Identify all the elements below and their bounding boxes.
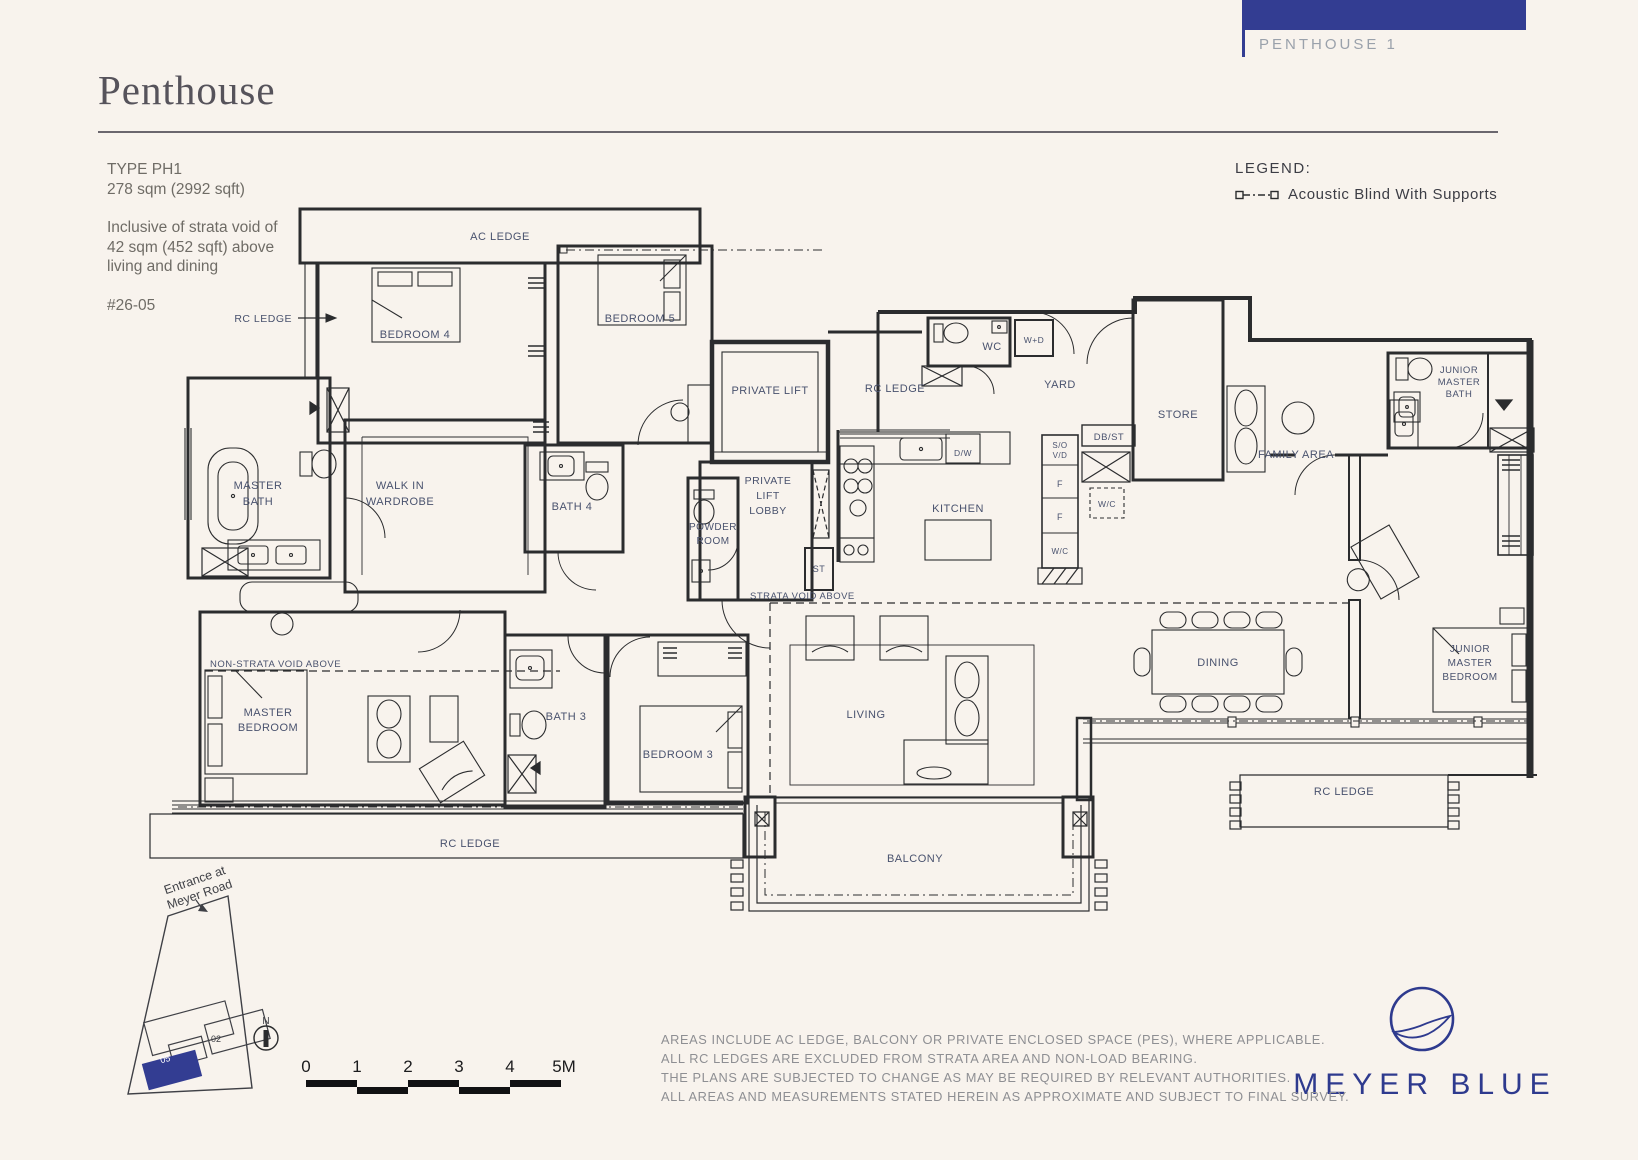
plan-label: MASTER bbox=[234, 480, 283, 492]
armchair bbox=[806, 616, 854, 660]
unit-05-footprint bbox=[143, 1050, 202, 1089]
disclaimer-line: ALL AREAS AND MEASUREMENTS STATED HEREIN… bbox=[661, 1087, 1349, 1106]
ledges bbox=[150, 775, 1459, 911]
room-store bbox=[1133, 300, 1223, 480]
stack-02-label: 02 bbox=[211, 1034, 221, 1044]
hatch-base bbox=[1038, 568, 1082, 584]
sofa bbox=[368, 696, 410, 762]
plan-label: BEDROOM 5 bbox=[605, 313, 676, 325]
room-bedroom-4 bbox=[318, 263, 545, 443]
plan-label: W/C bbox=[1098, 499, 1116, 509]
plan-label: YARD bbox=[1044, 379, 1076, 391]
plan-label: JUNIOR bbox=[1450, 644, 1490, 655]
toilet bbox=[300, 452, 312, 476]
logo-circle-icon bbox=[1391, 988, 1453, 1050]
room-bedroom-3 bbox=[608, 635, 748, 803]
plan-label: KITCHEN bbox=[932, 503, 984, 515]
wardrobe-hatch bbox=[663, 648, 742, 658]
plan-label: POWDER bbox=[689, 522, 737, 533]
plan-label: BEDROOM 3 bbox=[643, 749, 714, 761]
disclaimer: AREAS INCLUDE AC LEDGE, BALCONY OR PRIVA… bbox=[661, 1030, 1349, 1106]
armchair bbox=[880, 616, 928, 660]
floorplan-page: PENTHOUSE 1 Penthouse TYPE PH1 278 sqm (… bbox=[0, 0, 1638, 1160]
plan-label: F bbox=[1057, 512, 1063, 522]
scale-bar: 0 1 2 3 4 5M bbox=[301, 1057, 576, 1094]
hatch-box bbox=[1082, 452, 1130, 482]
plan-label: V/D bbox=[1053, 451, 1068, 460]
hatch-box bbox=[922, 366, 962, 386]
plan-label: MASTER bbox=[1438, 377, 1481, 388]
plan-label: LIFT bbox=[756, 490, 780, 502]
plan-label: W+D bbox=[1024, 335, 1045, 345]
doors bbox=[345, 312, 1483, 677]
plan-label: JUNIOR bbox=[1440, 365, 1478, 376]
plan-label: WALK IN bbox=[376, 480, 424, 492]
disclaimer-line: ALL RC LEDGES ARE EXCLUDED FROM STRATA A… bbox=[661, 1049, 1349, 1068]
plan-label: BATH bbox=[1446, 389, 1473, 400]
plan-label: LIVING bbox=[846, 709, 885, 721]
plan-label: WC bbox=[982, 341, 1001, 353]
scale-tick: 4 bbox=[505, 1057, 514, 1076]
plan-label: RC LEDGE bbox=[234, 313, 292, 325]
room-private-lift bbox=[712, 342, 828, 462]
windows bbox=[172, 263, 1533, 813]
shower-box bbox=[508, 755, 536, 793]
scale-tick: 1 bbox=[352, 1057, 361, 1076]
plan-label: RC LEDGE bbox=[440, 838, 500, 850]
logo-wave-icon bbox=[1394, 1016, 1450, 1038]
scale-tick: 0 bbox=[301, 1057, 310, 1076]
rug bbox=[790, 645, 1034, 785]
plan-label: BATH 4 bbox=[552, 501, 593, 513]
plan-label: BEDROOM bbox=[238, 722, 298, 734]
plan-label: DINING bbox=[1197, 657, 1239, 669]
walls bbox=[188, 209, 1537, 857]
lobby-shaft bbox=[813, 470, 829, 538]
plan-label: S/O bbox=[1052, 441, 1067, 450]
disclaimer-line: AREAS INCLUDE AC LEDGE, BALCONY OR PRIVA… bbox=[661, 1030, 1349, 1049]
compass-n-label: N bbox=[262, 1016, 269, 1027]
compass: N bbox=[254, 1016, 278, 1050]
plan-label: W/C bbox=[1051, 547, 1068, 556]
plan-label: PRIVATE bbox=[745, 475, 792, 487]
floor-plan-svg: AC LEDGERC LEDGEBEDROOM 4BEDROOM 5MASTER… bbox=[0, 0, 1638, 1160]
plan-label: FAMILY AREA bbox=[1258, 449, 1334, 461]
plan-label: MASTER bbox=[244, 707, 293, 719]
plan-label: DB/ST bbox=[1094, 432, 1124, 443]
wardrobe-hatch bbox=[1502, 460, 1520, 546]
plan-label: ROOM bbox=[696, 536, 729, 547]
plan-label: PRIVATE LIFT bbox=[731, 385, 808, 397]
plan-label: STORE bbox=[1158, 409, 1198, 421]
round-table bbox=[1282, 402, 1314, 434]
disclaimer-line: THE PLANS ARE SUBJECTED TO CHANGE AS MAY… bbox=[661, 1068, 1349, 1087]
plan-label: BEDROOM 4 bbox=[380, 329, 451, 341]
scale-tick: 3 bbox=[454, 1057, 463, 1076]
plan-label: D/W bbox=[954, 448, 972, 458]
plan-label: NON-STRATA VOID ABOVE bbox=[210, 659, 341, 670]
plan-label: F bbox=[1057, 479, 1063, 489]
plan-label: BATH bbox=[243, 496, 274, 508]
plan-label: AC LEDGE bbox=[470, 231, 530, 243]
plan-label: RC LEDGE bbox=[1314, 786, 1374, 798]
plan-label: WARDROBE bbox=[366, 496, 434, 508]
shower-head-marker bbox=[1496, 400, 1512, 410]
plan-label: MASTER bbox=[1448, 658, 1493, 669]
plan-label: BATH 3 bbox=[546, 711, 587, 723]
plan-label: STRATA VOID ABOVE bbox=[750, 591, 855, 602]
site-plan: Entrance at Meyer Road 02 05 N bbox=[128, 863, 278, 1094]
plan-label: LOBBY bbox=[749, 505, 787, 517]
scale-tick: 2 bbox=[403, 1057, 412, 1076]
plan-label: ST bbox=[813, 564, 826, 574]
plan-label: RC LEDGE bbox=[865, 383, 925, 395]
scale-tick: 5M bbox=[552, 1057, 576, 1076]
plan-label: BALCONY bbox=[887, 853, 943, 865]
kitchen-sink bbox=[900, 438, 942, 460]
shower-box bbox=[202, 548, 248, 576]
plan-label: BEDROOM bbox=[1442, 672, 1497, 683]
